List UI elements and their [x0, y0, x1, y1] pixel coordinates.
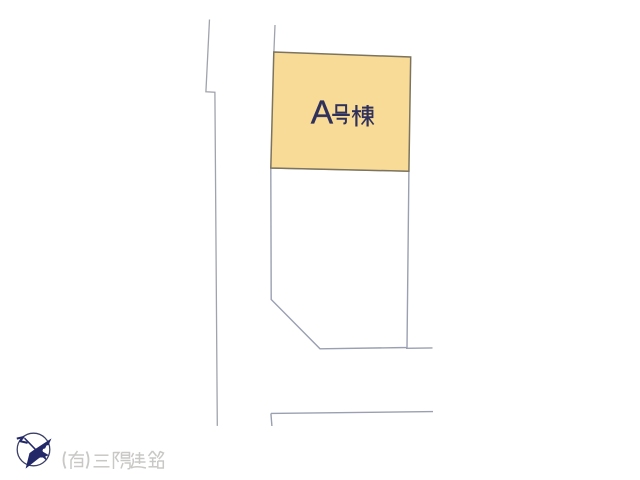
- svg-text:A: A: [311, 95, 334, 132]
